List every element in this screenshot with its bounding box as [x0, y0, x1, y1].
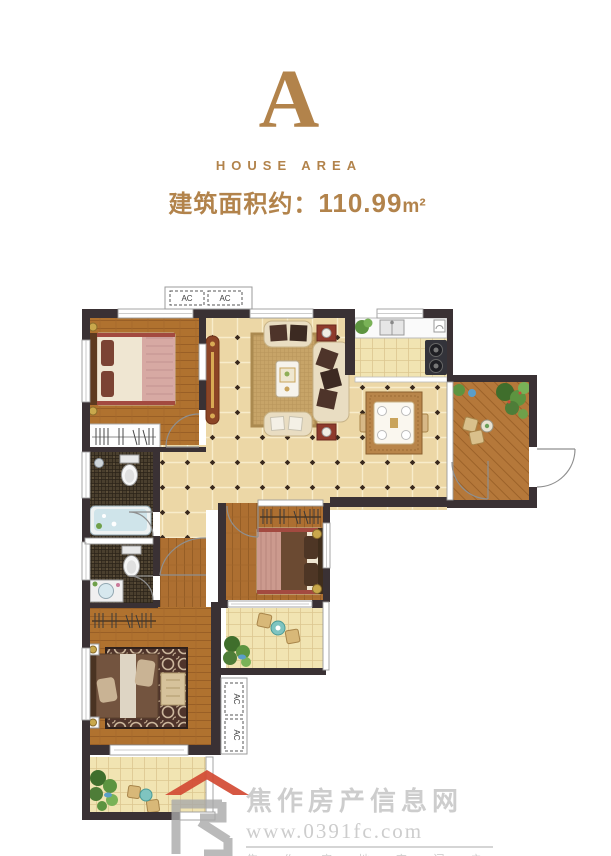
ac-label: AC [232, 693, 241, 704]
page: A HOUSE AREA 建筑面积约：110.99m² [0, 0, 611, 856]
watermark-site-name: 焦作房产信息网 [246, 781, 493, 818]
lamp [89, 323, 97, 331]
stool [146, 799, 160, 813]
toilet-tank [120, 455, 139, 463]
lamp [313, 585, 322, 594]
watermark-site-url: www.0391fc.com [246, 818, 493, 848]
watering-can [468, 389, 476, 397]
ac-label: AC [232, 729, 241, 740]
headboard [90, 333, 97, 405]
pillow [304, 563, 318, 586]
dining-furniture [360, 392, 428, 454]
bench [161, 673, 185, 705]
pillow [134, 659, 155, 687]
plate [378, 407, 387, 416]
tv [211, 352, 214, 408]
plate [402, 407, 411, 416]
plate [378, 431, 387, 440]
ac-label: AC [219, 294, 230, 303]
corridor-floor [160, 538, 206, 607]
lamp [313, 530, 322, 539]
chair [462, 417, 478, 433]
stool [285, 629, 300, 644]
logo-glyph [172, 800, 228, 854]
ac-platform-top: AC AC [165, 287, 252, 309]
pillow [101, 340, 114, 366]
chair [469, 430, 484, 445]
tea-table [140, 789, 152, 801]
entry-door [537, 449, 575, 487]
pillow [304, 536, 318, 559]
ac-label: AC [181, 294, 192, 303]
plant [453, 384, 465, 396]
lamp [89, 407, 97, 415]
stool [127, 785, 141, 799]
stool [257, 613, 272, 628]
plate [402, 431, 411, 440]
watermark: 焦作房产信息网 www.0391fc.com 焦 作 房 地 产 门 户 [246, 781, 493, 856]
pillow [101, 371, 114, 397]
duvet [281, 531, 307, 591]
watermark-tagline: 焦 作 房 地 产 门 户 [246, 851, 493, 856]
logo-roof [165, 770, 249, 795]
toilet-tank [122, 546, 141, 554]
hallway-floor [160, 445, 206, 540]
site-logo [162, 766, 252, 856]
basin [99, 584, 114, 599]
shower-head [95, 459, 104, 468]
floorplan-drawing: AC AC AC AC [0, 0, 611, 856]
ac-platform-side: AC AC [221, 678, 247, 754]
lamp [322, 329, 331, 338]
lamp [322, 428, 331, 437]
